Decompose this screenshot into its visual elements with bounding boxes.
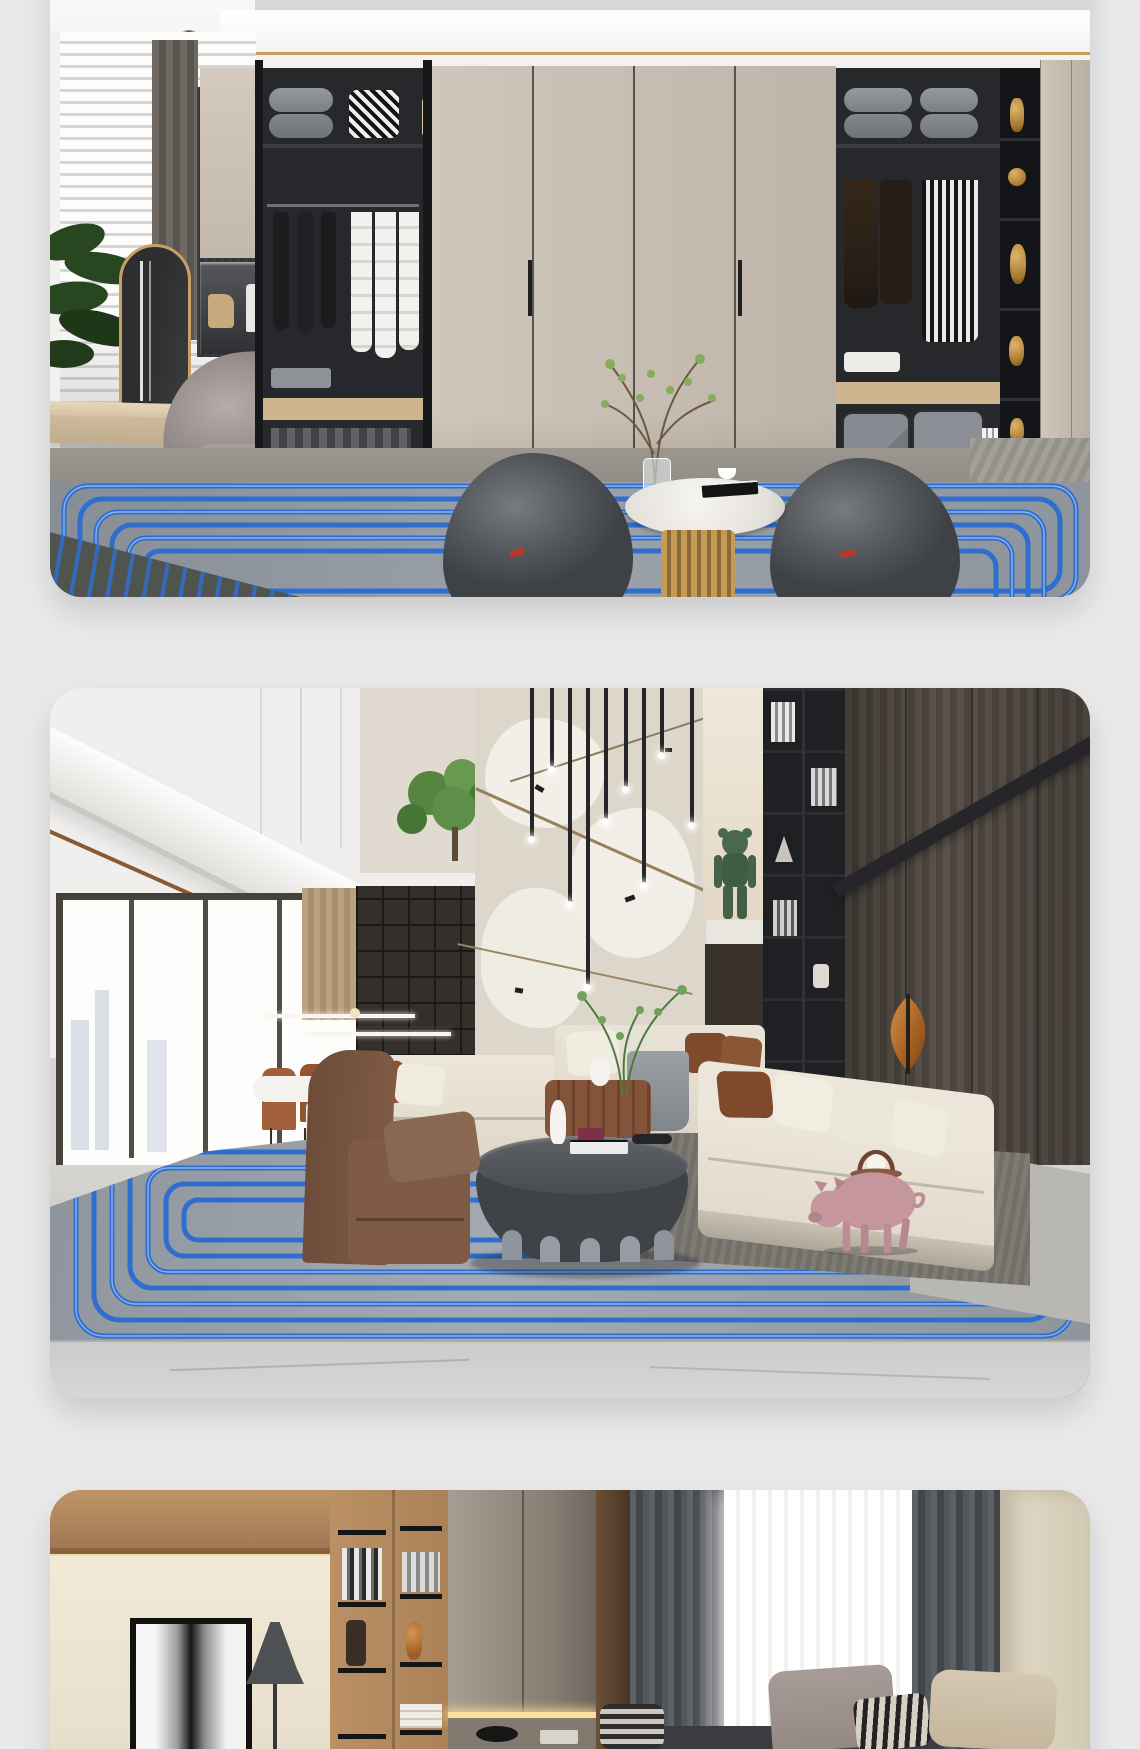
dark-bottle [346,1620,366,1666]
floor-vein [170,1359,470,1371]
upper-cabinets [448,1490,596,1712]
beige-pillow [928,1669,1058,1749]
side-table-base [661,530,735,597]
book-stack [570,1140,628,1154]
shelf-board [338,1530,386,1535]
pillow [920,114,978,138]
mullion [129,900,134,1158]
shelf [1000,398,1040,401]
white-book-stack [400,1704,442,1728]
figure-pedestal [706,920,764,944]
shelf-board [338,1602,386,1607]
cone-lamp-stem [273,1684,277,1749]
cove-light-glow [220,10,1090,46]
marble-speck [665,748,672,752]
red-tag [839,548,856,559]
hanging-suit [273,212,289,330]
drawer-front [263,398,423,420]
hanging-suit [321,212,336,328]
houndstooth-pillow [349,90,399,138]
pendant-tube [586,688,590,986]
linear-pendant [305,1032,451,1036]
pendant-sphere [350,1008,360,1018]
gold-ornament [1010,244,1026,284]
drawer-front [836,382,1000,404]
page-background [0,0,1140,1749]
front-marble-floor [50,1340,1090,1398]
pendant-tube [568,688,572,903]
table-arch-cutout [540,1236,560,1262]
hanging-suit [297,212,313,334]
gold-ceiling-trim [195,52,1090,55]
pendant-tube [550,688,554,768]
clothes-rail [267,204,419,207]
mirror-highlight [140,261,143,401]
books [773,900,797,936]
city-silhouette [147,1040,167,1152]
sofa-pillow-white [394,1063,446,1108]
pendant-light [528,836,535,843]
counter [448,1718,596,1749]
render-living-room[interactable] [50,688,1090,1398]
door-handle [528,260,532,316]
shelf [1000,308,1040,311]
sprig-plant [562,970,712,1096]
book-pile [540,1730,578,1744]
red-tag [508,547,525,559]
pendant-tube [690,688,694,824]
gold-ornament [1009,336,1024,366]
pillow [844,114,912,138]
sofa-pillow-white [772,1071,834,1134]
decor-jar [813,964,829,988]
wardrobe-upright [423,60,432,496]
pendant-tube [624,688,628,788]
mirror-highlight [149,261,151,401]
copper-leaf-ornament [880,994,936,1074]
sofa-pillow-white [832,1088,891,1143]
column-divider [392,1490,395,1749]
fur-coat [880,180,912,304]
shelf [1000,138,1040,141]
dark-bowl [476,1726,518,1742]
wood-slat-panel [302,888,356,1020]
table-arch-cutout [502,1230,522,1260]
render-walk-in-closet[interactable] [50,0,1090,597]
floor-vein [650,1366,990,1380]
pendant-tube [604,688,608,820]
books [811,768,837,806]
pillow [844,88,912,112]
pig-side-table [806,1140,928,1258]
linear-pendant [265,1014,415,1018]
pendant-light [688,822,695,829]
decor-cone [775,836,793,862]
folded-stack [271,368,331,388]
city-silhouette [95,990,109,1150]
mullion [203,900,208,1158]
shelf-board [400,1594,442,1599]
shelf [1000,218,1040,221]
pillow [920,88,978,112]
table-vase [550,1100,566,1144]
striped-pillow [852,1692,931,1749]
shelf [836,144,1000,148]
armchair-cushion-line [356,1218,464,1221]
table-arch-cutout [580,1238,600,1262]
shelf-board [400,1730,442,1735]
handbag [208,294,234,328]
pendant-light [622,786,629,793]
gold-ornament [1008,168,1026,186]
glass-partition-line [300,688,302,843]
pendant-tube [642,688,646,884]
copper-decor [406,1622,422,1660]
sofa-pillow-brown [716,1071,775,1118]
green-figure [712,828,758,922]
table-arch-cutout [654,1230,674,1260]
pendant-light [548,766,555,773]
render-bedroom[interactable] [50,1490,1090,1749]
table-arch-cutout [620,1236,640,1262]
pillow [269,114,333,138]
pendant-tube [660,688,664,754]
hanging-dress [375,212,396,358]
pendant-light [566,901,573,908]
hanging-dress [351,212,372,352]
shelf-board [338,1668,386,1673]
armchair-arm [382,1110,482,1184]
pendant-light [640,882,647,889]
pendant-tube [530,688,534,838]
wardrobe-section [263,68,423,496]
hanging-dress [399,212,419,350]
framed-artwork [130,1618,252,1749]
door-handle [738,260,742,316]
white-vase [590,1058,610,1086]
shelf-board [400,1526,442,1531]
glass-partition-line [260,688,262,838]
shelf-board [400,1662,442,1667]
pendant-light [602,818,609,825]
pillow [269,88,333,112]
fur-coat [844,180,878,308]
shelf-board [338,1734,386,1739]
folded-whites [844,352,900,372]
striped-garments [922,180,978,342]
shelf [263,144,423,148]
pendant-light [658,752,665,759]
wardrobe-upright [255,60,263,496]
city-silhouette [71,1020,89,1150]
gold-ornament [1010,98,1024,132]
books [342,1548,382,1600]
cabinet-seam [522,1490,524,1712]
books [402,1552,440,1592]
glass-partition-line [340,688,342,848]
decor-tray [632,1134,672,1144]
shelf-column [330,1490,448,1749]
striped-pillow [600,1704,664,1749]
books [771,702,795,742]
